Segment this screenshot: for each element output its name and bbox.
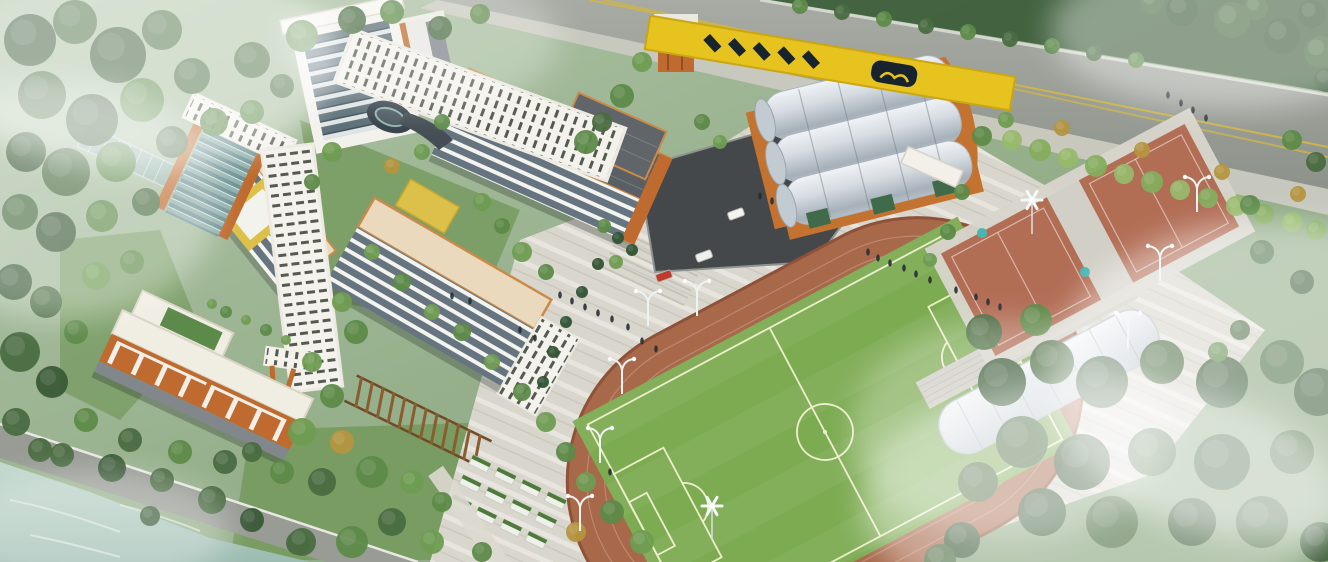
tree-highlight [599, 220, 606, 227]
tree-highlight [1004, 33, 1012, 41]
person [902, 264, 906, 271]
tree-highlight [312, 471, 326, 485]
tree-highlight [77, 410, 89, 422]
tree-highlight [539, 414, 549, 424]
tree-highlight [395, 275, 404, 284]
tree-highlight [366, 246, 374, 254]
court-hoop-a [977, 228, 987, 238]
person [468, 297, 472, 304]
tree-highlight [595, 114, 605, 124]
tree-highlight [559, 444, 569, 454]
tree-highlight [562, 317, 568, 323]
tree-highlight [1000, 114, 1008, 122]
tree-highlight [956, 186, 964, 194]
person [626, 323, 630, 330]
tree-highlight [1144, 173, 1155, 184]
tree-highlight [628, 245, 634, 251]
tree-highlight [569, 524, 579, 534]
tree-highlight [121, 430, 133, 442]
person [986, 298, 990, 305]
person [654, 345, 658, 352]
tree-highlight [306, 176, 314, 184]
tree-highlight [6, 411, 20, 425]
tree-highlight [416, 146, 424, 154]
tree-highlight [1056, 122, 1064, 130]
tree-highlight [1285, 132, 1295, 142]
person [450, 292, 454, 299]
tree-highlight [925, 254, 932, 261]
tree-highlight [577, 132, 589, 144]
person [1204, 114, 1208, 121]
tree-highlight [305, 354, 315, 364]
tree-highlight [360, 459, 376, 475]
person [758, 192, 762, 199]
tree-highlight [1117, 166, 1127, 176]
tree-highlight [243, 510, 255, 522]
tree-highlight [486, 356, 494, 364]
campus-rendering [0, 0, 1328, 562]
person [770, 197, 774, 204]
tree-highlight [614, 233, 620, 239]
tree-highlight [1088, 157, 1099, 168]
tree-highlight [696, 116, 704, 124]
person [640, 337, 644, 344]
tree-highlight [292, 421, 306, 435]
tree-highlight [539, 377, 545, 383]
tree-highlight [579, 474, 589, 484]
tree-highlight [962, 26, 970, 34]
person [888, 259, 892, 266]
person [570, 297, 574, 304]
tree-highlight [594, 259, 600, 265]
tree-highlight [340, 529, 356, 545]
tree-highlight [475, 195, 484, 204]
tree-highlight [31, 440, 43, 452]
tree-highlight [435, 494, 445, 504]
tree-highlight [836, 6, 844, 14]
person [954, 286, 958, 293]
tree-highlight [347, 322, 359, 334]
tree-highlight [262, 325, 268, 331]
person [610, 315, 614, 322]
tree-highlight [1173, 182, 1183, 192]
tree-highlight [245, 444, 255, 454]
tree-highlight [436, 116, 444, 124]
tree-highlight [1061, 150, 1071, 160]
person [998, 303, 1002, 310]
tree-highlight [171, 442, 183, 454]
person [928, 276, 932, 283]
tree-highlight [515, 385, 524, 394]
aerial-scene [0, 0, 1328, 562]
tree-highlight [403, 472, 415, 484]
tree-highlight [208, 300, 213, 305]
tree-highlight [715, 136, 722, 143]
tree-highlight [5, 336, 25, 356]
person [583, 303, 587, 310]
tree-highlight [1005, 132, 1015, 142]
tree-highlight [40, 369, 56, 385]
tree-highlight [242, 316, 247, 321]
tree-highlight [335, 294, 345, 304]
tree-highlight [382, 511, 396, 525]
tree-highlight [540, 266, 548, 274]
person [596, 309, 600, 316]
tree-highlight [67, 322, 79, 334]
tree-highlight [323, 386, 335, 398]
tree-highlight [1201, 190, 1211, 200]
tree-highlight [1292, 188, 1300, 196]
person [518, 326, 522, 333]
person [608, 468, 612, 475]
tree-highlight [1229, 198, 1239, 208]
tree-highlight [222, 307, 228, 313]
tree-highlight [1309, 154, 1319, 164]
tree-highlight [613, 86, 625, 98]
tree-highlight [920, 20, 928, 28]
person [876, 254, 880, 261]
tree-highlight [1243, 197, 1253, 207]
tree-highlight [455, 325, 464, 334]
tree-highlight [633, 532, 645, 544]
tree-highlight [102, 457, 116, 471]
tree-highlight [1136, 144, 1144, 152]
tree-highlight [325, 144, 335, 154]
tree-highlight [53, 445, 65, 457]
tree-highlight [975, 128, 985, 138]
tree-highlight [635, 54, 645, 64]
tree-highlight [423, 532, 435, 544]
tree-highlight [282, 336, 287, 341]
tree-highlight [475, 544, 485, 554]
tree-highlight [603, 502, 615, 514]
tree-highlight [496, 220, 504, 228]
person [533, 334, 537, 341]
court-hoop-b [1080, 267, 1090, 277]
person [914, 270, 918, 277]
person [558, 291, 562, 298]
person [866, 248, 870, 255]
tree-highlight [578, 287, 584, 293]
tree-highlight [426, 306, 434, 314]
tree-highlight [878, 13, 886, 21]
tree-highlight [216, 452, 228, 464]
person [974, 293, 978, 300]
tree-highlight [549, 347, 555, 353]
tree-highlight [1032, 141, 1043, 152]
tree-highlight [292, 531, 306, 545]
tree-highlight [273, 462, 285, 474]
tree-highlight [611, 256, 618, 263]
tree-highlight [386, 160, 394, 168]
tree-highlight [942, 226, 950, 234]
tree-highlight [1216, 166, 1224, 174]
tree-highlight [333, 432, 345, 444]
tree-highlight [515, 244, 525, 254]
